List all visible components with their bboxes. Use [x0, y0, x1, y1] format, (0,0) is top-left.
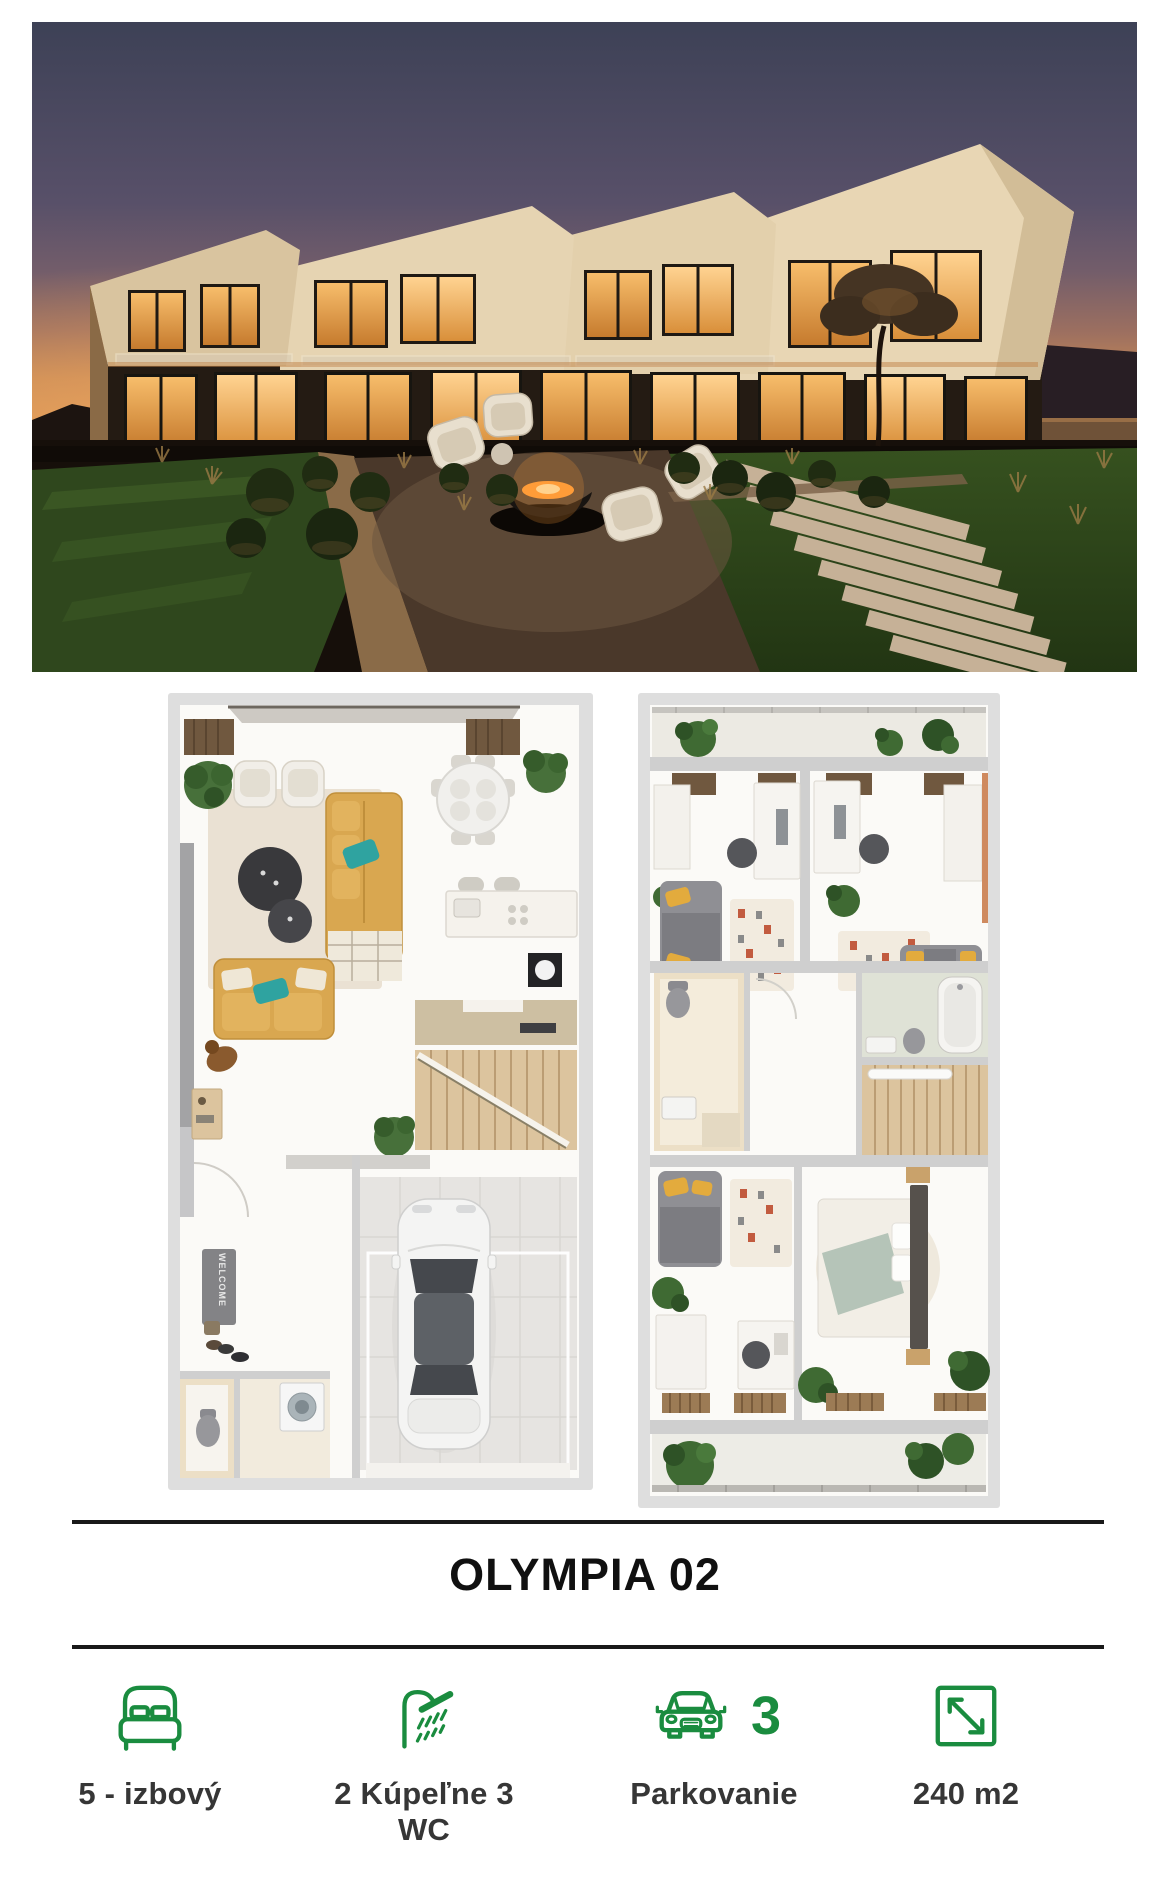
- parking-count: 3: [751, 1679, 781, 1753]
- wall: [856, 973, 862, 1157]
- garage-door-opening: [366, 1463, 570, 1478]
- bed-icon: [109, 1678, 191, 1754]
- feature-bathrooms-label: 2 Kúpeľne 3 WC: [312, 1776, 536, 1848]
- feature-parking-label: Parkovanie: [586, 1776, 842, 1812]
- lower-windows: [124, 370, 1028, 450]
- sofa-horizontal: [214, 959, 334, 1039]
- handrail: [868, 1069, 952, 1079]
- accent-wall: [982, 773, 988, 923]
- laundry-room: [240, 1379, 330, 1478]
- sink: [662, 1097, 696, 1119]
- upper-floor-plan-graphic: [638, 693, 1000, 1508]
- top-balcony: [652, 707, 986, 757]
- bathroom-left: [654, 973, 744, 1151]
- garage: [360, 1177, 577, 1478]
- feature-area: 240 m2: [854, 1676, 1078, 1812]
- divider-top: [72, 1520, 1104, 1524]
- car-icon: [647, 1678, 735, 1754]
- headboard: [910, 1185, 928, 1349]
- divider-bottom: [72, 1645, 1104, 1649]
- nightstand: [906, 1167, 930, 1183]
- exterior-photo: [32, 22, 1137, 672]
- car: [392, 1199, 496, 1453]
- shower-icon: [384, 1678, 464, 1754]
- plant: [942, 1433, 974, 1465]
- staircase: [862, 1065, 988, 1155]
- area-icon: [927, 1678, 1005, 1754]
- feature-bedrooms: 5 - izbový: [40, 1676, 260, 1812]
- page-title: OLYMPIA 02: [0, 1549, 1170, 1601]
- dresser: [656, 1315, 706, 1389]
- welcome-mat-text: WELCOME: [217, 1253, 227, 1307]
- sofa-vertical: [326, 793, 402, 981]
- staircase: [415, 1050, 577, 1150]
- feature-parking: 3 Parkovanie: [586, 1676, 842, 1812]
- wall: [650, 961, 988, 973]
- bag: [204, 1321, 220, 1335]
- office-chair: [742, 1341, 770, 1369]
- toilet: [903, 1028, 925, 1054]
- toilet: [196, 1415, 220, 1447]
- nightstand: [906, 1349, 930, 1365]
- wc-room: [180, 1379, 234, 1478]
- railing: [652, 1485, 986, 1492]
- wall: [800, 771, 810, 963]
- exterior-photo-graphic: [32, 22, 1137, 672]
- wall: [744, 973, 750, 1151]
- sink: [866, 1037, 896, 1053]
- feature-bathrooms: 2 Kúpeľne 3 WC: [312, 1676, 536, 1848]
- wall: [650, 757, 988, 771]
- wall: [234, 1379, 240, 1478]
- plaid-blanket: [328, 931, 402, 981]
- bottom-balcony: [652, 1433, 986, 1492]
- wall: [650, 1420, 988, 1434]
- bathroom-right: [862, 973, 988, 1057]
- features-row: 5 - izbový 2 Kúpeľne 3 WC: [0, 1676, 1170, 1846]
- wall: [180, 1371, 330, 1379]
- rug: [934, 1393, 986, 1411]
- toilet: [666, 988, 690, 1018]
- upper-floor-plan: [638, 693, 1000, 1508]
- wall: [650, 1155, 988, 1167]
- office-chair: [727, 838, 757, 868]
- rug: [826, 1393, 884, 1411]
- ground-floor-plan: WELCOME: [168, 693, 593, 1490]
- feature-area-label: 240 m2: [854, 1776, 1078, 1812]
- office-chair: [859, 834, 889, 864]
- ground-floor-plan-graphic: WELCOME: [168, 693, 593, 1490]
- listing-flyer: { "page": {"background": "#ffffff"}, "he…: [0, 0, 1170, 1898]
- wall: [862, 1057, 988, 1065]
- wall: [352, 1155, 360, 1478]
- feature-bedrooms-label: 5 - izbový: [40, 1776, 260, 1812]
